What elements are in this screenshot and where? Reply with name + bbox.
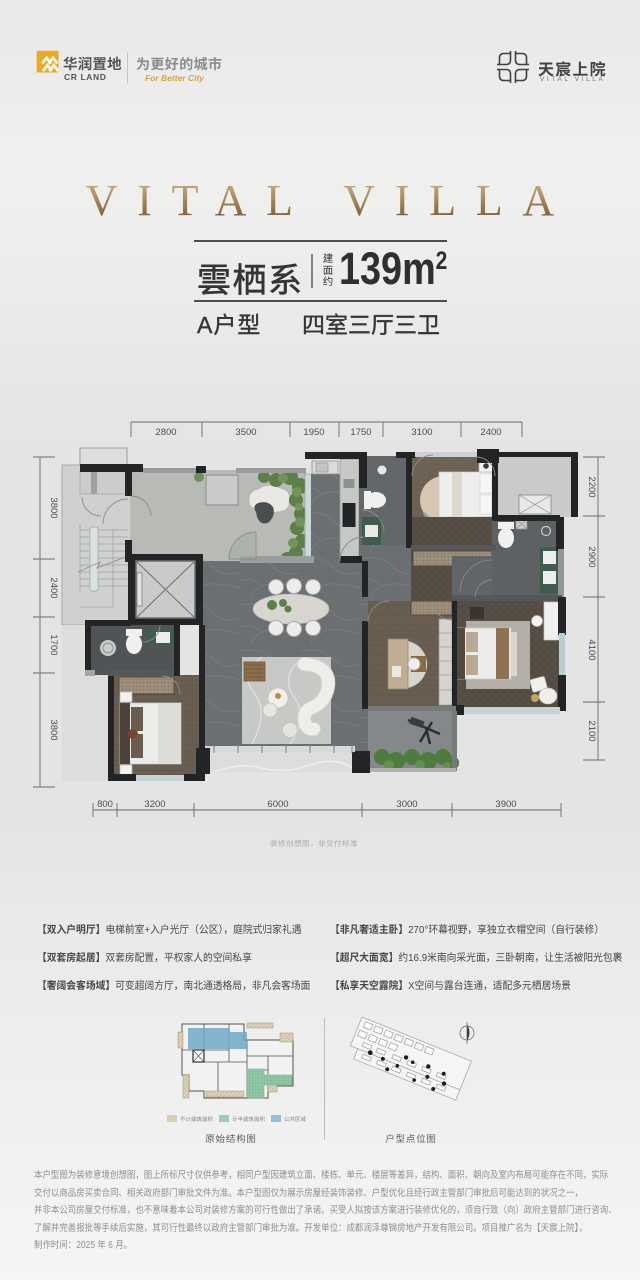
svg-text:1950: 1950 [303,427,324,438]
svg-text:3000: 3000 [396,799,417,810]
svg-text:1750: 1750 [350,427,371,438]
svg-text:3900: 3900 [495,799,516,810]
svg-text:3500: 3500 [235,427,256,438]
svg-text:3800: 3800 [48,497,59,518]
svg-text:4100: 4100 [586,639,597,660]
svg-text:3200: 3200 [144,799,165,810]
svg-text:3800: 3800 [48,719,59,740]
svg-text:2400: 2400 [480,427,501,438]
svg-text:2400: 2400 [48,577,59,598]
svg-text:公共区域: 公共区域 [284,1116,307,1123]
svg-text:2900: 2900 [586,546,597,567]
svg-text:2100: 2100 [586,720,597,741]
svg-text:2200: 2200 [586,476,597,497]
svg-text:3100: 3100 [411,427,432,438]
svg-text:计半建筑面积: 计半建筑面积 [232,1116,266,1123]
svg-text:800: 800 [97,799,113,810]
svg-text:2800: 2800 [155,427,176,438]
svg-text:1700: 1700 [48,634,59,655]
svg-text:6000: 6000 [267,799,288,810]
svg-text:不计建筑面积: 不计建筑面积 [180,1116,214,1123]
